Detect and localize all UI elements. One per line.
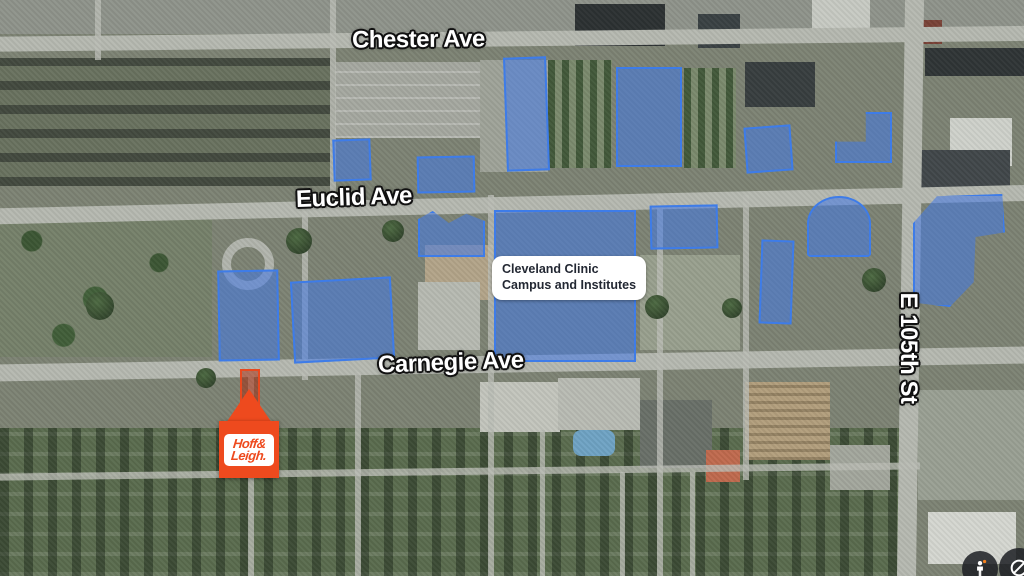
- street-label-carnegie-ave: Carnegie Ave: [378, 346, 525, 379]
- marker-square[interactable]: Hoff& Leigh.: [219, 421, 279, 478]
- cleveland-clinic-label-line1: Cleveland Clinic: [502, 261, 636, 277]
- pegman-icon: [970, 559, 990, 576]
- cleveland-clinic-label-line2: Campus and Institutes: [502, 277, 636, 293]
- compass-icon: [1008, 557, 1024, 576]
- marker-logo: Hoff& Leigh.: [224, 434, 274, 466]
- marker-logo-line2: Leigh.: [231, 450, 268, 462]
- street-label-chester-ave: Chester Ave: [352, 25, 485, 54]
- cleveland-clinic-label: Cleveland Clinic Campus and Institutes: [492, 256, 646, 300]
- street-label-e-105th-st: E 105th St: [894, 278, 922, 418]
- satellite-map[interactable]: Chester AveEuclid AveCarnegie AveE 105th…: [0, 0, 1024, 576]
- marker-pointer-icon: [226, 389, 272, 423]
- street-label-euclid-ave: Euclid Ave: [296, 182, 413, 214]
